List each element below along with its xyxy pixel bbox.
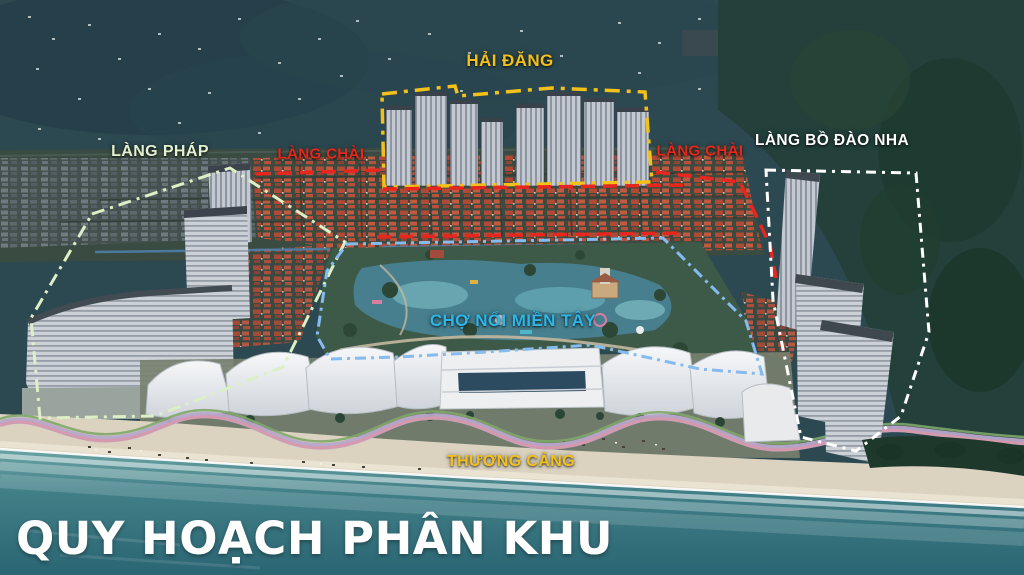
zone-label-hai-dang: HẢI ĐĂNG — [466, 51, 553, 71]
zone-label-cho-noi-mien-tay: CHỢ NỔI MIỀN TÂY — [430, 311, 596, 331]
masterplan-image: HẢI ĐĂNG LÀNG PHÁP LÀNG CHÀI LÀNG CHÀI L… — [0, 0, 1024, 575]
zone-outline-lang-chai — [256, 170, 776, 278]
zone-label-thuong-cang: THƯƠNG CẢNG — [447, 453, 575, 471]
zone-outlines-layer — [0, 0, 1024, 575]
zone-outline-lang-phap — [31, 168, 345, 418]
zone-label-lang-phap: LÀNG PHÁP — [111, 143, 209, 161]
page-title: QUY HOẠCH PHÂN KHU — [16, 512, 613, 565]
zone-outline-cho-noi-mien-tay — [317, 238, 762, 374]
zone-label-lang-chai-right: LÀNG CHÀI — [657, 143, 744, 160]
zone-label-lang-chai-left: LÀNG CHÀI — [278, 146, 365, 163]
zone-label-lang-bo-dao-nha: LÀNG BỒ ĐÀO NHA — [755, 132, 909, 150]
zone-outline-lang-bo-dao-nha — [766, 170, 929, 451]
zone-outline-hai-dang — [382, 86, 652, 187]
